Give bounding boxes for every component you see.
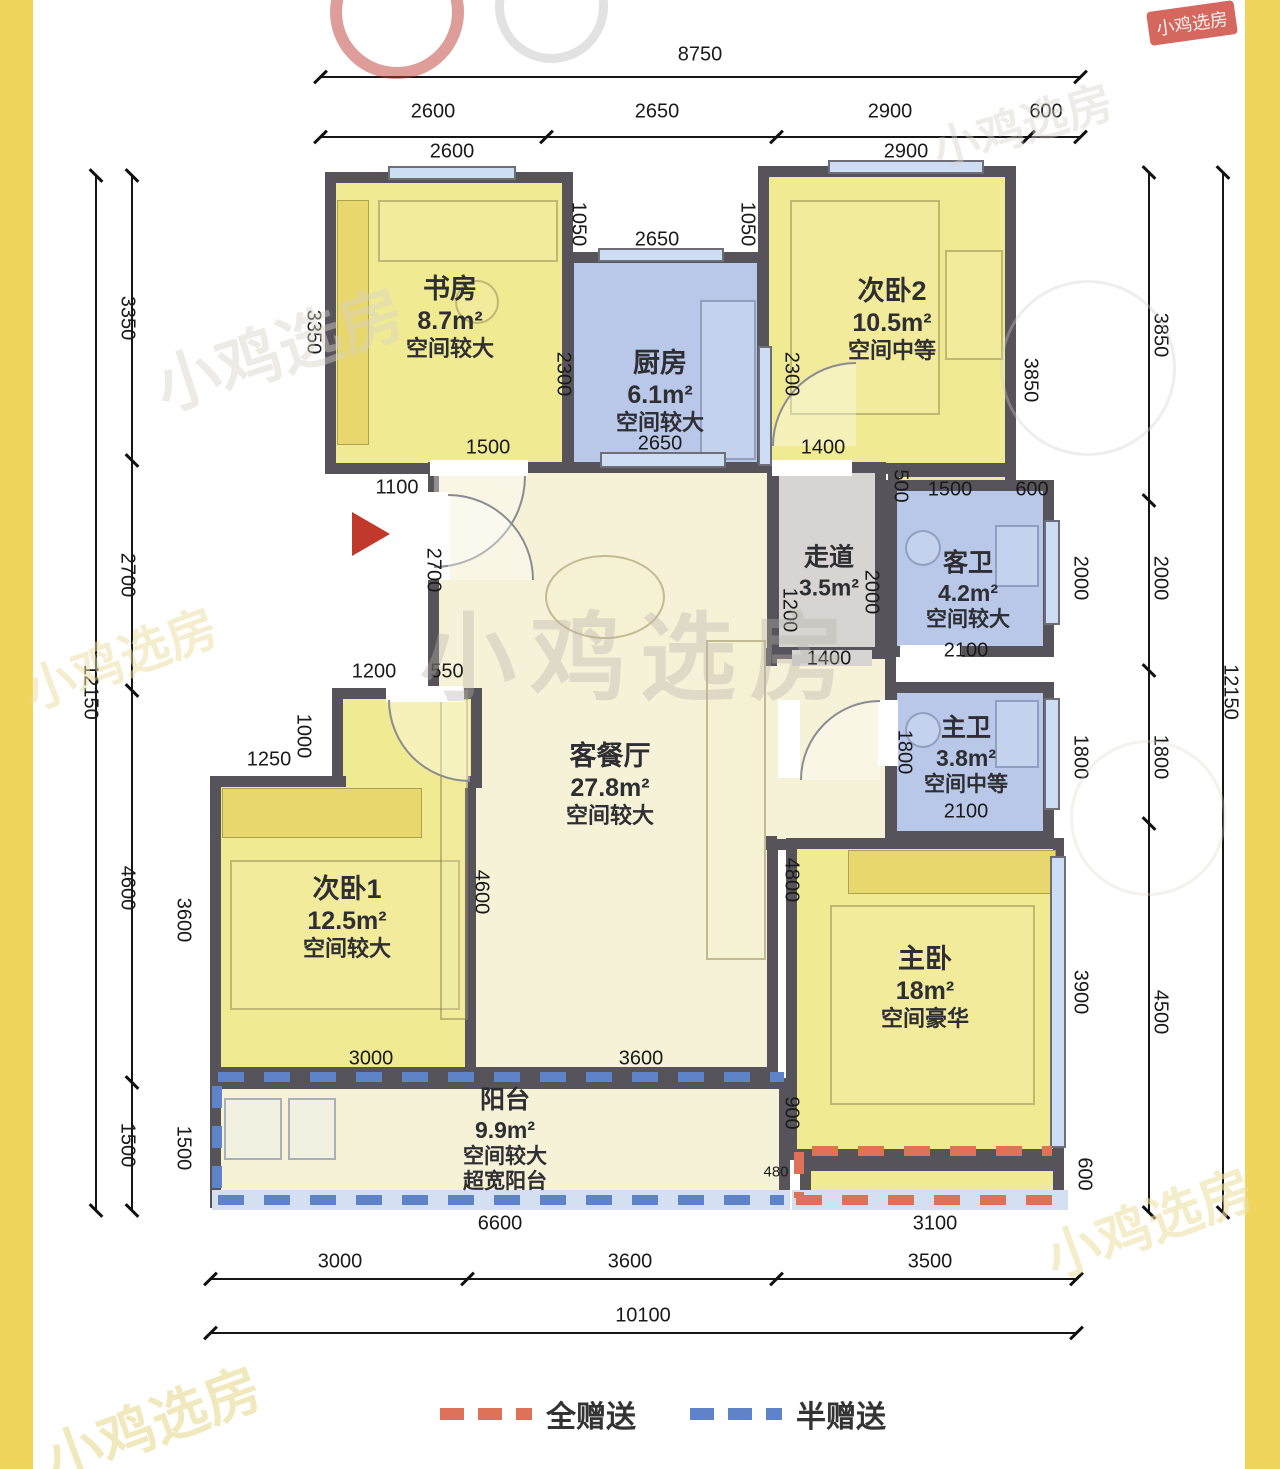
entrance-arrow — [352, 512, 390, 556]
room-label-balcony: 阳台 9.9m² 空间较大 超宽阳台 — [463, 1085, 547, 1195]
room-label-study: 书房 8.7m² 空间较大 — [406, 273, 494, 363]
dim-label: 4600 — [470, 870, 493, 915]
stamp-ring-icon — [495, 0, 608, 63]
dim-label: 1800 — [1149, 735, 1172, 780]
legend: 全赠送 半赠送 — [440, 1392, 886, 1436]
dim-line — [320, 136, 1080, 138]
bed2-desk — [945, 250, 1003, 360]
room-label-gbath: 客卫 4.2m² 空间较大 — [926, 548, 1010, 632]
dim-label: 2650 — [638, 433, 683, 456]
dim-label: 2650 — [635, 229, 680, 252]
dim-line — [210, 1332, 1076, 1334]
master-door-gap — [778, 700, 800, 778]
full-gift-dash-bottom — [796, 1195, 1062, 1205]
dim-label: 1500 — [466, 437, 511, 460]
room-label-living: 客餐厅 27.8m² 空间较大 — [566, 740, 654, 830]
dim-label: 3850 — [1019, 358, 1042, 403]
dim-label: 2300 — [780, 352, 803, 397]
dim-label: 1500 — [928, 479, 973, 502]
floorplan-canvas: 书房 8.7m² 空间较大 厨房 6.1m² 空间较大 次卧2 10.5m² 空… — [0, 0, 1280, 1469]
dim-label: 1000 — [292, 714, 315, 759]
dim-label: 1250 — [247, 749, 292, 772]
full-gift-label: 全赠送 — [546, 1392, 636, 1436]
dim-label: 3350 — [116, 296, 139, 341]
room-label-bed2: 次卧2 10.5m² 空间中等 — [848, 275, 936, 365]
left-yellow-bar — [0, 0, 33, 1469]
living-sofa — [706, 640, 766, 960]
master-window — [1050, 856, 1066, 1148]
full-gift-dash-sample — [440, 1408, 532, 1420]
dim-label: 2700 — [422, 548, 445, 593]
dim-label: 3600 — [619, 1048, 664, 1071]
study-window — [388, 166, 516, 180]
dim-label: 2600 — [411, 101, 456, 124]
room-label-mbath: 主卫 3.8m² 空间中等 — [924, 713, 1008, 797]
bed2-door-gap — [772, 460, 852, 476]
dim-label: 4600 — [116, 866, 139, 911]
dim-label: 3500 — [908, 1251, 953, 1274]
dining-table — [545, 555, 665, 639]
dim-label: 900 — [780, 1096, 803, 1129]
half-gift-label: 半赠送 — [796, 1392, 886, 1436]
dim-label: 1400 — [807, 648, 852, 671]
master-wardrobe — [848, 850, 1056, 894]
dim-label: 3000 — [318, 1251, 363, 1274]
dim-label: 3000 — [349, 1048, 394, 1071]
half-gift-dash-balcony-left — [212, 1086, 222, 1192]
dim-label: 2650 — [635, 101, 680, 124]
dim-label: 2000 — [1149, 556, 1172, 601]
study-cabinet — [337, 200, 369, 445]
dim-line — [210, 1278, 1076, 1280]
dim-label: 3600 — [608, 1251, 653, 1274]
bed2-side-window — [758, 346, 772, 466]
dim-label: 1200 — [352, 661, 397, 684]
gbath-window — [1044, 520, 1060, 625]
dim-label: 8750 — [678, 44, 723, 67]
dim-label: 12150 — [79, 664, 102, 720]
dim-label: 1050 — [736, 202, 759, 247]
room-label-kitchen: 厨房 6.1m² 空间较大 — [616, 347, 704, 437]
balcony-sink — [288, 1098, 336, 1160]
dim-label: 2900 — [868, 101, 913, 124]
dim-label: 1200 — [778, 588, 801, 633]
full-gift-dash-corner — [794, 1152, 804, 1198]
dim-label: 3850 — [1149, 313, 1172, 358]
watermark-left-mid: 小鸡选房 — [14, 588, 227, 724]
room-label-bed1: 次卧1 12.5m² 空间较大 — [303, 873, 391, 963]
dim-label: 1800 — [893, 730, 916, 775]
dim-label: 4500 — [1149, 990, 1172, 1035]
mbath-window — [1044, 698, 1060, 810]
half-gift-dash-balcony-top — [218, 1072, 784, 1082]
dim-label: 3600 — [172, 898, 195, 943]
dim-label: 2300 — [552, 352, 575, 397]
dim-label: 1500 — [116, 1123, 139, 1168]
dim-label: 12150 — [1219, 664, 1242, 720]
kitchen-counter — [700, 300, 756, 460]
bed1-wardrobe — [222, 788, 422, 838]
dim-label: 2100 — [944, 801, 989, 824]
dim-label: 3100 — [913, 1213, 958, 1236]
study-door-gap — [430, 460, 528, 476]
dim-label: 1400 — [801, 437, 846, 460]
dim-label: 2000 — [1069, 556, 1092, 601]
dim-label: 550 — [430, 661, 463, 684]
half-gift-dash-sample — [690, 1408, 782, 1420]
brand-stamp: 小鸡选房 — [1146, 0, 1238, 46]
dim-label: 480 — [763, 1164, 788, 1181]
dim-label: 2000 — [860, 570, 883, 615]
room-label-corridor: 走道 3.5m² — [799, 543, 859, 602]
balcony-washer — [224, 1098, 282, 1160]
dim-label: 1500 — [172, 1126, 195, 1171]
study-desk — [378, 200, 558, 262]
dim-label: 3350 — [302, 310, 325, 355]
dim-label: 600 — [1073, 1157, 1096, 1190]
dim-line — [320, 76, 1080, 78]
dim-label: 10100 — [615, 1305, 671, 1328]
watermark-bottom-left: 小鸡选房 — [33, 1344, 271, 1469]
full-gift-dash-master — [812, 1146, 1052, 1156]
dim-label: 3900 — [1069, 970, 1092, 1015]
stamp-ring-icon — [330, 0, 464, 79]
room-label-master: 主卧 18m² 空间豪华 — [881, 943, 969, 1033]
dim-label: 2600 — [430, 141, 475, 164]
right-yellow-bar — [1245, 0, 1280, 1469]
dim-label: 2100 — [944, 640, 989, 663]
dim-label: 2900 — [884, 141, 929, 164]
dim-label: 600 — [1015, 479, 1048, 502]
dim-label: 1100 — [375, 477, 418, 500]
dim-label: 1050 — [567, 202, 590, 247]
dim-label: 600 — [1029, 101, 1062, 124]
dim-label: 6600 — [478, 1213, 523, 1236]
dim-label: 500 — [889, 469, 912, 502]
half-gift-dash-balcony-bottom — [218, 1195, 784, 1205]
dim-label: 1800 — [1069, 735, 1092, 780]
dim-label: 4800 — [780, 858, 803, 903]
dim-label: 2700 — [116, 553, 139, 598]
